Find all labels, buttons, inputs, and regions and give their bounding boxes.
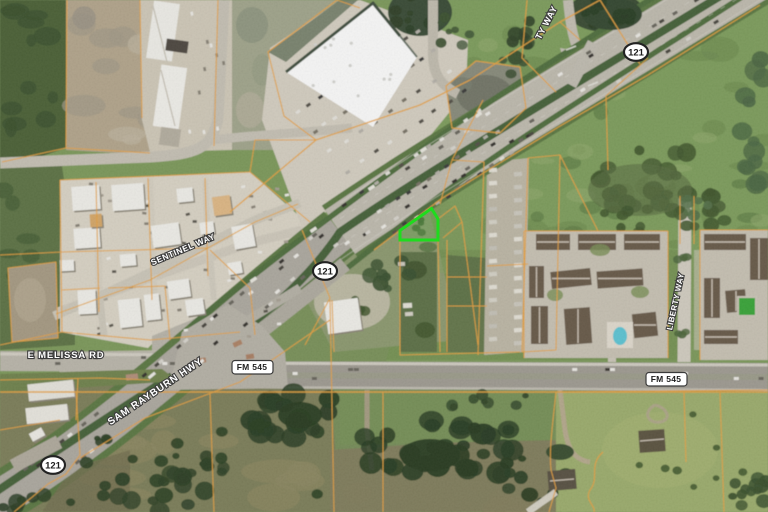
svg-text:E MELISSA RD: E MELISSA RD <box>28 350 105 361</box>
svg-text:121: 121 <box>628 47 645 58</box>
svg-text:FM 545: FM 545 <box>651 374 682 384</box>
svg-text:FM 545: FM 545 <box>237 362 268 372</box>
svg-text:121: 121 <box>45 460 62 471</box>
svg-text:121: 121 <box>317 266 334 277</box>
